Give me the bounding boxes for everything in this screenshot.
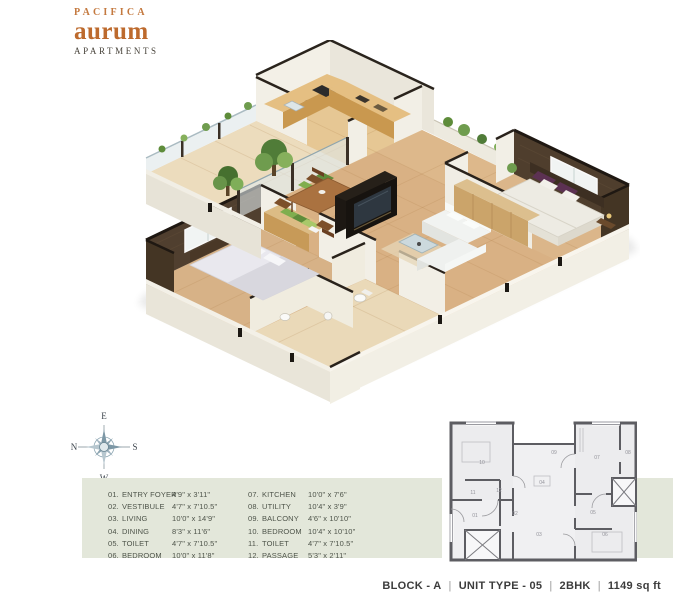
compass-right-label: S	[132, 442, 137, 452]
floor-plan-sheet: PACIFICA aurum APARTMENTS	[0, 0, 673, 600]
mini-room-label: 11	[470, 490, 475, 496]
separator: |	[598, 580, 601, 592]
legend-row: 05.TOILET4'7" x 7'10.5"	[108, 537, 217, 549]
legend-row: 09.BALCONY4'6" x 10'10"	[248, 513, 355, 525]
legend-room-name: BEDROOM	[122, 551, 172, 560]
legend-room-size: 4'7" x 7'10.5"	[172, 502, 217, 511]
legend-room-number: 06.	[108, 551, 122, 560]
legend-row: 01.ENTRY FOYER4'9" x 3'11"	[108, 488, 217, 500]
legend-room-size: 10'4" x 10'10"	[308, 527, 355, 536]
legend-room-size: 10'0" x 11'8"	[172, 551, 217, 560]
legend-room-name: TOILET	[262, 539, 308, 548]
area-label: 1149 sq ft	[608, 580, 661, 592]
floor-plan-3d-render	[60, 40, 640, 412]
legend-room-name: UTILITY	[262, 502, 308, 511]
mini-room-label: 03	[536, 532, 542, 538]
unit-type-label: UNIT TYPE - 05	[459, 580, 543, 592]
mini-room-label: 07	[594, 455, 600, 461]
legend-row: 06.BEDROOM10'0" x 11'8"	[108, 549, 217, 561]
mini-room-label: 09	[551, 450, 557, 456]
mini-room-label: 02	[512, 511, 518, 517]
legend-room-name: TOILET	[122, 539, 172, 548]
legend-room-size: 4'7" x 7'10.5"	[172, 539, 217, 548]
compass-top-label: E	[101, 411, 107, 421]
mini-room-label: 04	[539, 480, 545, 486]
mini-room-label: 05	[590, 510, 596, 516]
legend-room-size: 10'0" x 14'9"	[172, 514, 217, 523]
legend-room-name: BALCONY	[262, 514, 308, 523]
floor-plan-2d-key: 10 11 12 04 09 07 08 05 06 03 02 01	[442, 414, 637, 580]
legend-room-size: 4'9" x 3'11"	[172, 490, 217, 499]
legend-room-number: 05.	[108, 539, 122, 548]
legend-room-number: 02.	[108, 502, 122, 511]
legend-room-number: 11.	[248, 539, 262, 548]
corridor-plant	[507, 163, 517, 173]
legend-room-name: PASSAGE	[262, 551, 308, 560]
legend-room-size: 10'0" x 7'6"	[308, 490, 355, 499]
legend-row: 10.BEDROOM10'4" x 10'10"	[248, 525, 355, 537]
legend-room-size: 4'6" x 10'10"	[308, 514, 355, 523]
legend-row: 11.TOILET4'7" x 7'10.5"	[248, 537, 355, 549]
bhk-label: 2BHK	[560, 580, 591, 592]
legend-room-size: 5'3" x 2'11"	[308, 551, 355, 560]
legend-room-name: VESTIBULE	[122, 502, 172, 511]
legend-row: 07.KITCHEN10'0" x 7'6"	[248, 488, 355, 500]
legend-room-number: 09.	[248, 514, 262, 523]
legend-room-number: 12.	[248, 551, 262, 560]
compass-rose: E N S W	[60, 407, 152, 487]
block-label: BLOCK - A	[382, 580, 441, 592]
compass-left-label: N	[71, 442, 78, 452]
legend-room-size: 10'4" x 3'9"	[308, 502, 355, 511]
legend-column-left: 01.ENTRY FOYER4'9" x 3'11" 02.VESTIBULE4…	[108, 488, 217, 562]
legend-room-name: BEDROOM	[262, 527, 308, 536]
mini-room-label: 01	[472, 513, 478, 519]
legend-room-size: 8'3" x 11'6"	[172, 527, 217, 536]
separator: |	[449, 580, 452, 592]
legend-room-number: 10.	[248, 527, 262, 536]
legend-column-right: 07.KITCHEN10'0" x 7'6" 08.UTILITY10'4" x…	[248, 488, 355, 562]
legend-room-number: 08.	[248, 502, 262, 511]
legend-row: 03.LIVING10'0" x 14'9"	[108, 513, 217, 525]
legend-room-name: KITCHEN	[262, 490, 308, 499]
brand-name-top: PACIFICA	[74, 8, 159, 18]
legend-room-number: 07.	[248, 490, 262, 499]
compass-star	[86, 429, 122, 465]
legend-row: 04.DINING8'3" x 11'6"	[108, 525, 217, 537]
legend-room-name: ENTRY FOYER	[122, 490, 172, 499]
legend-row: 08.UTILITY10'4" x 3'9"	[248, 500, 355, 512]
legend-room-number: 04.	[108, 527, 122, 536]
legend-room-number: 03.	[108, 514, 122, 523]
mini-room-label: 06	[602, 532, 608, 538]
legend-room-name: LIVING	[122, 514, 172, 523]
legend-room-size: 4'7" x 7'10.5"	[308, 539, 355, 548]
mini-room-label: 10	[479, 460, 485, 466]
legend-room-number: 01.	[108, 490, 122, 499]
legend-row: 02.VESTIBULE4'7" x 7'10.5"	[108, 500, 217, 512]
mini-room-label: 08	[625, 450, 631, 456]
separator: |	[549, 580, 552, 592]
legend-room-name: DINING	[122, 527, 172, 536]
legend-row: 12.PASSAGE5'3" x 2'11"	[248, 549, 355, 561]
spec-footer: BLOCK - A | UNIT TYPE - 05 | 2BHK | 1149…	[382, 580, 661, 592]
mini-room-label: 12	[496, 488, 502, 494]
